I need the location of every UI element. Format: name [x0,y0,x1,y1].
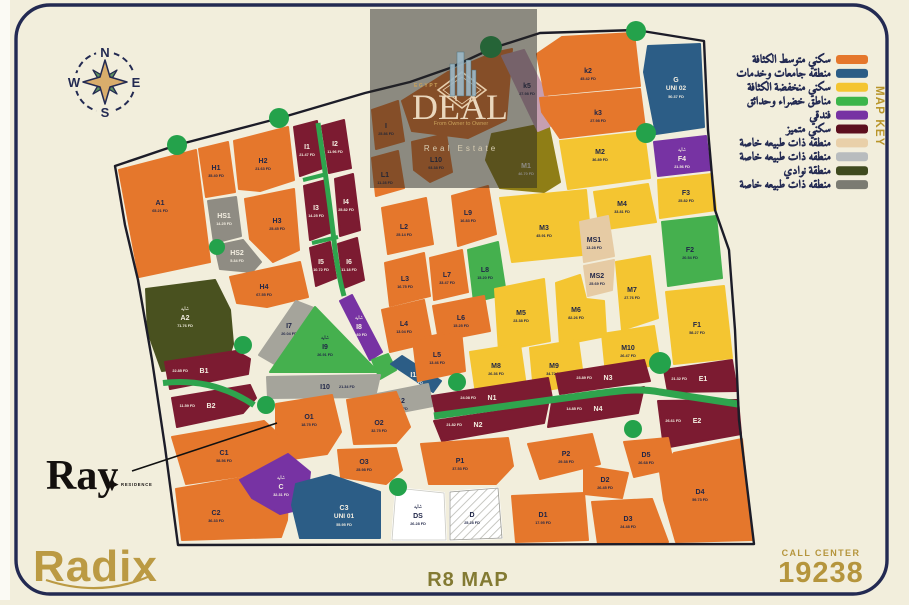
svg-text:I10: I10 [320,384,330,391]
svg-text:L8: L8 [481,267,489,274]
svg-text:L7: L7 [443,272,451,279]
svg-text:L9: L9 [464,210,472,217]
svg-text:H1: H1 [212,165,221,172]
svg-text:M5: M5 [516,310,526,317]
svg-text:82.26 FD: 82.26 FD [568,316,584,320]
svg-text:W: W [68,75,81,90]
svg-text:36.89 FD: 36.89 FD [592,158,608,162]
svg-text:24.48 FD: 24.48 FD [620,525,636,529]
svg-text:G: G [673,77,679,84]
svg-text:27.76 FD: 27.76 FD [624,296,640,300]
svg-text:14.25 FD: 14.25 FD [308,214,324,218]
svg-text:25.82 FD: 25.82 FD [678,199,694,203]
svg-text:HS1: HS1 [217,213,231,220]
svg-text:59.73 FD: 59.73 FD [692,498,708,502]
svg-text:O1: O1 [304,414,313,421]
svg-text:N3: N3 [604,375,613,382]
svg-text:D3: D3 [624,516,633,523]
svg-text:N1: N1 [488,395,497,402]
svg-text:k2: k2 [584,68,592,75]
svg-text:Ray: Ray [46,453,118,499]
svg-text:DS: DS [413,513,423,520]
svg-text:C2: C2 [212,510,221,517]
svg-text:MAP KEY: MAP KEY [873,86,885,147]
svg-text:25.45 FD: 25.45 FD [269,227,285,231]
svg-text:21.63 FD: 21.63 FD [255,167,271,171]
svg-text:32.75 FD: 32.75 FD [371,429,387,433]
svg-text:33.81 FD: 33.81 FD [614,210,630,214]
svg-text:33.47 FD: 33.47 FD [439,281,455,285]
svg-text:UNI 02: UNI 02 [666,85,687,92]
svg-text:26.68 FD: 26.68 FD [638,461,654,465]
svg-text:C3: C3 [340,505,349,512]
svg-text:19238: 19238 [778,557,864,589]
svg-text:D5: D5 [642,452,651,459]
svg-text:P2: P2 [562,451,571,458]
svg-text:S: S [101,105,110,120]
svg-text:25.28 FD: 25.28 FD [464,521,480,525]
svg-text:k3: k3 [594,110,602,117]
svg-text:71.76 FD: 71.76 FD [177,324,193,328]
svg-text:I2: I2 [332,141,338,148]
svg-text:16.75 FD: 16.75 FD [397,285,413,289]
svg-text:Radix: Radix [33,542,158,591]
svg-text:25.98 FD: 25.98 FD [356,468,372,472]
svg-text:25.69 FD: 25.69 FD [589,282,605,286]
svg-text:20.54 FD: 20.54 FD [682,256,698,260]
svg-text:23.38 FD: 23.38 FD [513,319,529,323]
svg-text:F3: F3 [682,190,690,197]
svg-text:MS2: MS2 [590,273,605,280]
svg-text:D2: D2 [601,477,610,484]
svg-text:14.85 FD: 14.85 FD [566,407,582,411]
svg-text:P1: P1 [456,458,465,465]
svg-text:M7: M7 [627,287,637,294]
svg-text:E: E [132,75,141,90]
svg-text:I8: I8 [356,324,362,331]
svg-text:I3: I3 [313,205,319,212]
svg-text:H3: H3 [273,218,282,225]
svg-text:11.96 FD: 11.96 FD [327,150,343,154]
svg-text:65.21 FD: 65.21 FD [152,209,168,213]
svg-text:I6: I6 [346,259,352,266]
svg-text:16.83 FD: 16.83 FD [460,219,476,223]
svg-text:21.56 FD: 21.56 FD [674,165,690,169]
svg-text:From Owner to Owner: From Owner to Owner [434,121,489,127]
svg-text:N: N [100,45,109,60]
svg-text:15.25 FD: 15.25 FD [453,324,469,328]
svg-text:Real Estate: Real Estate [424,144,498,153]
svg-text:B1: B1 [200,368,209,375]
svg-text:11.18 FD: 11.18 FD [341,268,357,272]
svg-text:I4: I4 [343,199,349,206]
svg-text:MS1: MS1 [587,237,602,244]
svg-text:UNI 01: UNI 01 [334,513,355,520]
svg-text:13.46 FD: 13.46 FD [429,361,445,365]
svg-text:37.53 FD: 37.53 FD [452,467,468,471]
svg-text:25.82 FD: 25.82 FD [338,208,354,212]
svg-text:32.31 FD: 32.31 FD [273,493,289,497]
svg-text:26.61 FD: 26.61 FD [665,419,681,423]
svg-text:F4: F4 [678,156,686,163]
svg-text:26.91 FD: 26.91 FD [317,353,333,357]
svg-text:45.42 FD: 45.42 FD [580,77,596,81]
svg-text:55.95 FD: 55.95 FD [336,523,352,527]
svg-text:D4: D4 [696,489,705,496]
svg-text:R8 MAP: R8 MAP [427,569,509,591]
svg-text:58.56 FD: 58.56 FD [216,459,232,463]
svg-text:A1: A1 [156,200,165,207]
svg-text:M4: M4 [617,201,627,208]
svg-text:14.25 FD: 14.25 FD [216,222,232,226]
svg-text:E2: E2 [693,418,702,425]
svg-text:21.47 FD: 21.47 FD [299,153,315,157]
svg-text:I9: I9 [322,344,328,351]
svg-text:17.95 FD: 17.95 FD [535,521,551,525]
svg-text:26.28 FD: 26.28 FD [410,522,426,526]
svg-text:HS2: HS2 [230,250,244,257]
svg-text:25.14 FD: 25.14 FD [396,233,412,237]
svg-text:10.72 FD: 10.72 FD [313,268,329,272]
svg-text:15.20 FD: 15.20 FD [477,276,493,280]
svg-text:L2: L2 [400,224,408,231]
svg-text:RESIDENCE: RESIDENCE [121,482,153,487]
svg-text:5.34 FD: 5.34 FD [230,259,244,263]
svg-text:35.40 FD: 35.40 FD [208,174,224,178]
svg-text:M8: M8 [491,363,501,370]
svg-text:L4: L4 [400,321,408,328]
svg-text:L6: L6 [457,315,465,322]
svg-text:F2: F2 [686,247,694,254]
svg-text:11.59 FD: 11.59 FD [180,404,196,408]
svg-text:24.08 FD: 24.08 FD [460,396,476,400]
svg-text:C: C [278,484,283,491]
svg-text:26.47 FD: 26.47 FD [620,354,636,358]
svg-text:36.33 FD: 36.33 FD [208,519,224,523]
svg-text:M2: M2 [595,149,605,156]
svg-text:I5: I5 [318,259,324,266]
svg-text:O3: O3 [359,459,368,466]
svg-text:26.26 FD: 26.26 FD [407,381,423,385]
svg-text:26.45 FD: 26.45 FD [597,486,613,490]
svg-text:50.37 FD: 50.37 FD [668,95,684,99]
svg-text:N2: N2 [474,422,483,429]
svg-text:M10: M10 [621,345,635,352]
svg-text:21.34 FD: 21.34 FD [339,385,355,389]
svg-text:21.82 FD: 21.82 FD [446,423,462,427]
svg-text:18.75 FD: 18.75 FD [301,423,317,427]
svg-text:D1: D1 [539,512,548,519]
svg-text:L3: L3 [401,276,409,283]
svg-text:67.55 FD: 67.55 FD [256,293,272,297]
svg-text:45.91 FD: 45.91 FD [536,234,552,238]
svg-text:L5: L5 [433,352,441,359]
svg-text:F1: F1 [693,322,701,329]
svg-text:O2: O2 [374,420,383,427]
svg-text:M9: M9 [549,363,559,370]
svg-text:23.89 FD: 23.89 FD [576,376,592,380]
svg-text:M3: M3 [539,225,549,232]
svg-text:22.85 FD: 22.85 FD [172,369,188,373]
svg-text:22.60 FD: 22.60 FD [351,333,367,337]
svg-text:58.27 FD: 58.27 FD [689,331,705,335]
svg-text:E1: E1 [699,376,708,383]
svg-text:N4: N4 [594,406,603,413]
svg-text:27.98 FD: 27.98 FD [590,119,606,123]
svg-text:D: D [469,512,474,519]
svg-text:29.38 FD: 29.38 FD [558,460,574,464]
svg-text:13.04 FD: 13.04 FD [396,330,412,334]
svg-text:21.32 FD: 21.32 FD [671,377,687,381]
svg-text:B2: B2 [207,403,216,410]
svg-text:26.36 FD: 26.36 FD [488,372,504,376]
svg-text:I1: I1 [304,144,310,151]
svg-text:I7: I7 [286,323,292,330]
svg-text:13.28 FD: 13.28 FD [586,246,602,250]
svg-text:A2: A2 [181,315,190,322]
svg-text:C1: C1 [220,450,229,457]
svg-text:H4: H4 [260,284,269,291]
svg-text:M6: M6 [571,307,581,314]
svg-text:H2: H2 [259,158,268,165]
